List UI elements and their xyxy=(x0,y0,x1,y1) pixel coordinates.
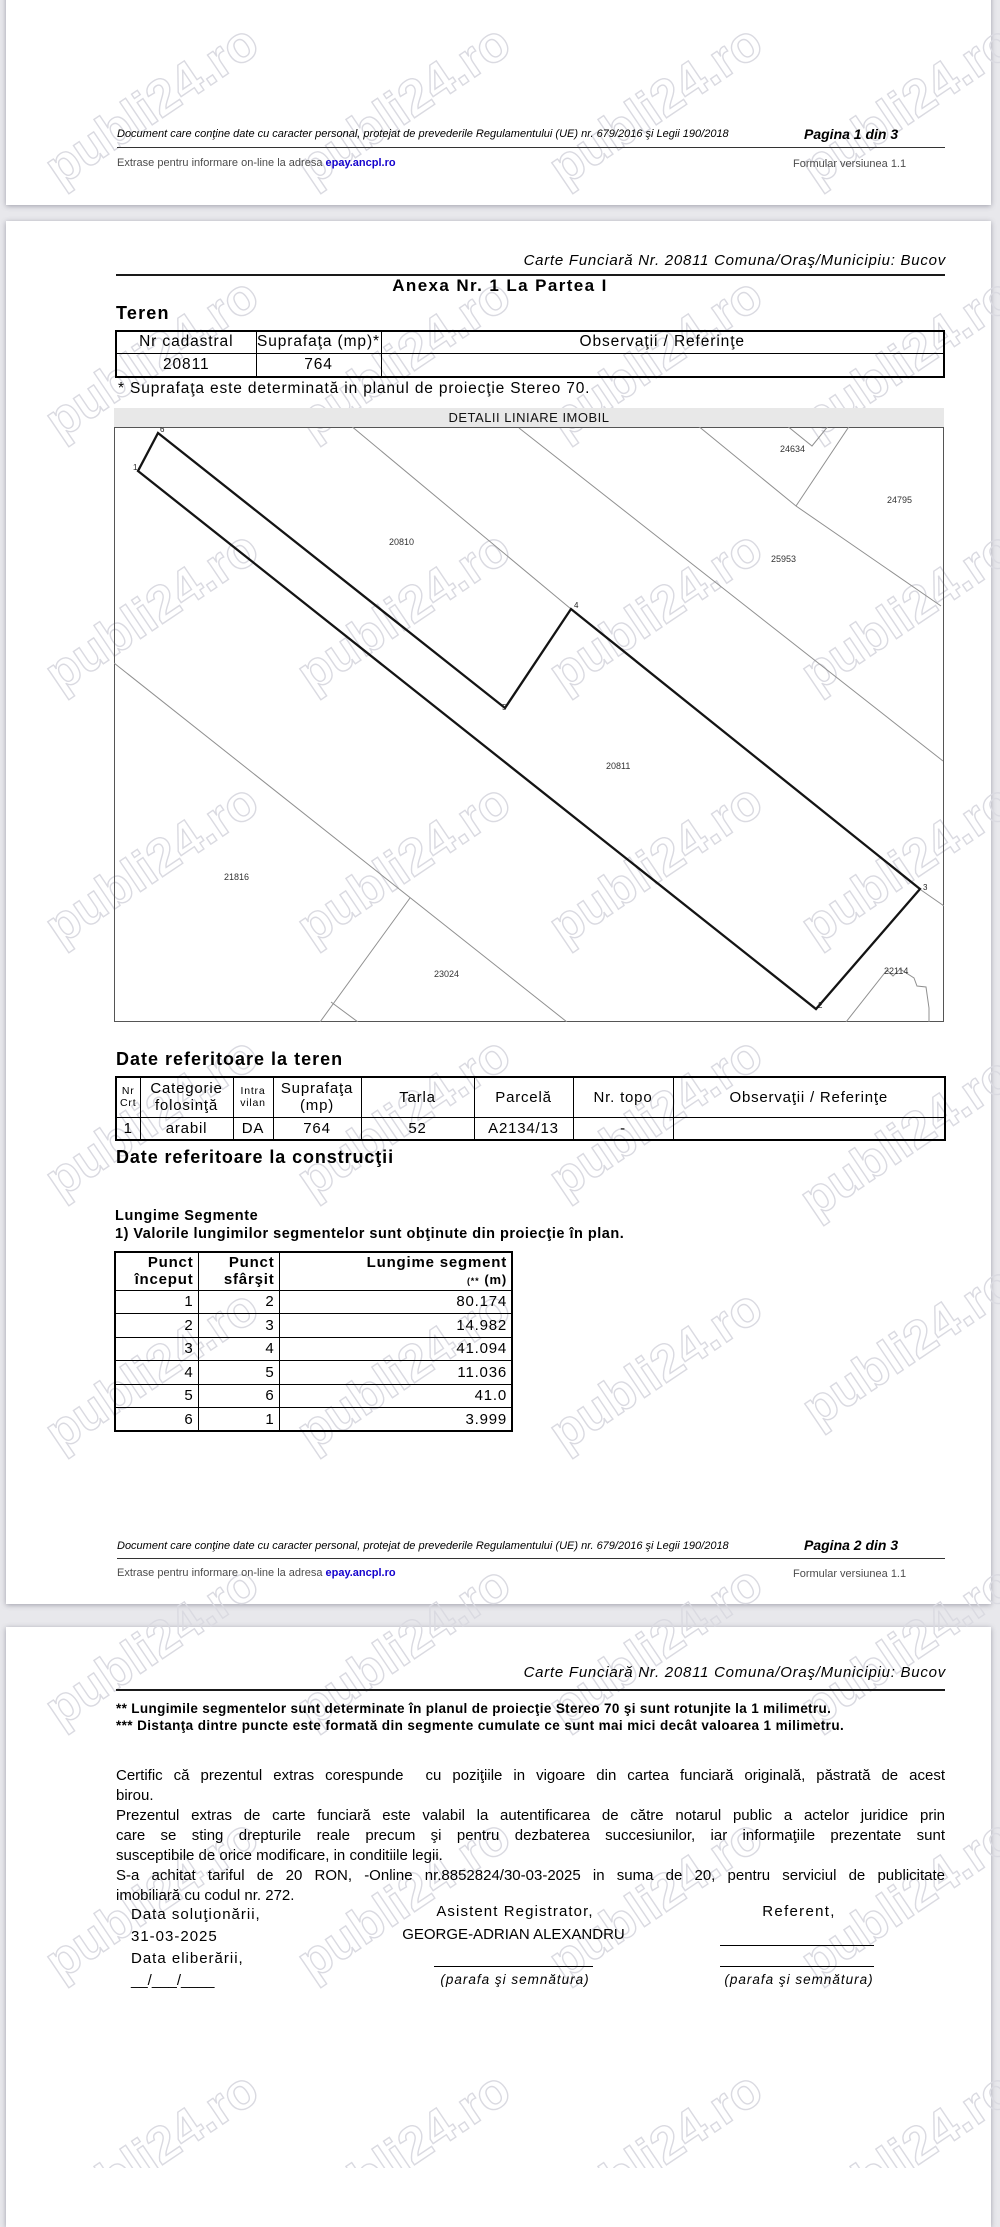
svg-text:6: 6 xyxy=(160,427,165,434)
svg-text:25953: 25953 xyxy=(771,554,796,564)
svg-text:24634: 24634 xyxy=(780,444,805,454)
svg-text:21816: 21816 xyxy=(224,872,249,882)
svg-text:20810: 20810 xyxy=(389,537,414,547)
svg-text:24795: 24795 xyxy=(887,495,912,505)
svg-text:2: 2 xyxy=(818,1001,823,1010)
svg-text:3: 3 xyxy=(923,883,928,892)
svg-text:4: 4 xyxy=(574,601,579,610)
svg-text:1: 1 xyxy=(133,463,138,472)
svg-text:5: 5 xyxy=(502,703,507,712)
svg-text:20811: 20811 xyxy=(606,761,630,771)
svg-text:22114: 22114 xyxy=(884,966,908,976)
svg-text:23024: 23024 xyxy=(434,969,459,979)
